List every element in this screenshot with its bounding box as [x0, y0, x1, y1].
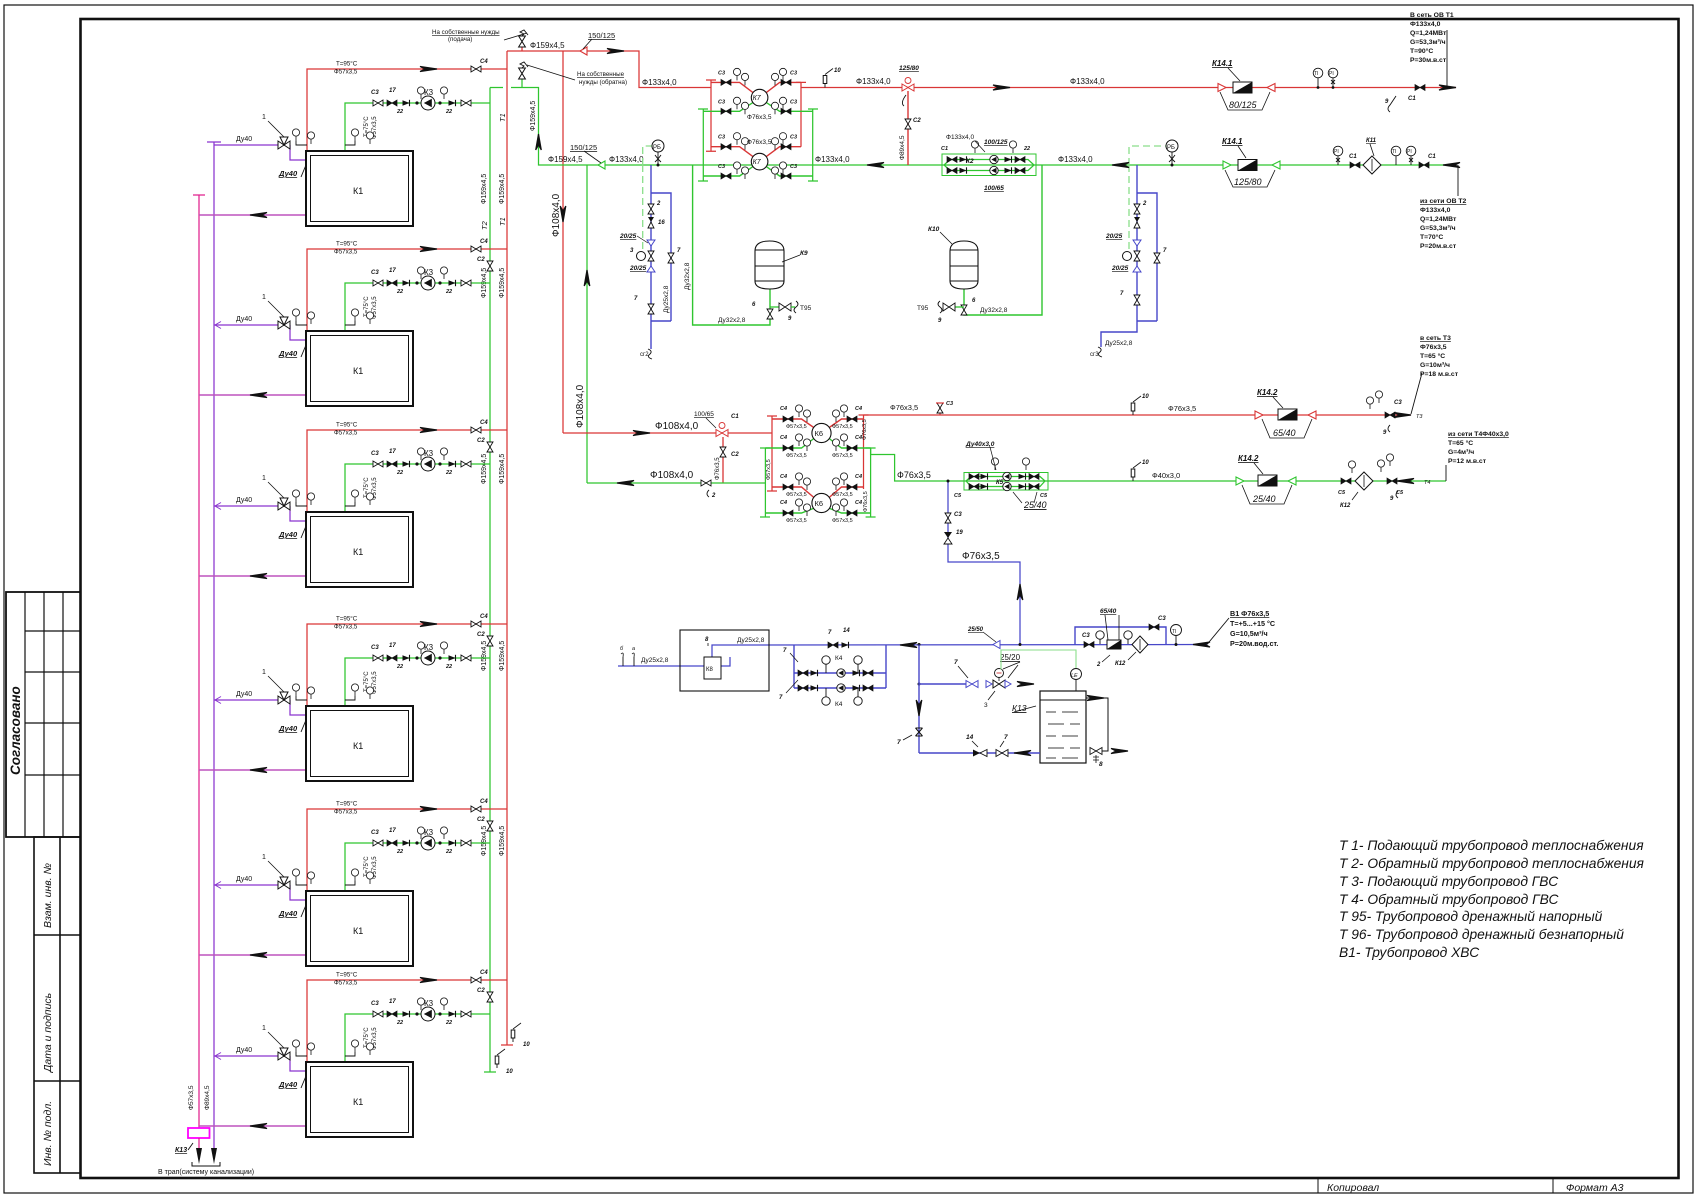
svg-text:С3: С3: [718, 135, 725, 141]
svg-text:В сеть ОВ Т1: В сеть ОВ Т1: [1410, 12, 1454, 19]
svg-text:К14.1: К14.1: [1212, 59, 1233, 68]
svg-text:К8: К8: [706, 667, 713, 673]
svg-text:С2: С2: [477, 632, 485, 638]
svg-text:Ф57х3,5: Ф57х3,5: [786, 424, 807, 430]
svg-text:С3: С3: [718, 99, 725, 105]
svg-text:На собственные нужды: На собственные нужды: [432, 29, 500, 36]
svg-text:Т4: Т4: [1424, 480, 1430, 486]
svg-text:TI: TI: [1172, 629, 1176, 635]
svg-text:Т1: Т1: [498, 217, 507, 226]
svg-text:Т=90°С: Т=90°С: [1410, 47, 1433, 55]
svg-text:Ду25х2,8: Ду25х2,8: [641, 657, 669, 664]
svg-text:Ф57х3,5: Ф57х3,5: [188, 1085, 195, 1110]
svg-text:К14.2: К14.2: [1238, 454, 1259, 463]
svg-text:нужды (обратна): нужды (обратна): [579, 79, 627, 86]
svg-text:Взам. инв. №: Взам. инв. №: [42, 863, 54, 928]
svg-text:Т3: Т3: [1416, 414, 1423, 420]
svg-text:2: 2: [1096, 662, 1101, 668]
svg-text:Q=1,24МВт: Q=1,24МВт: [1420, 216, 1457, 223]
svg-text:150/125: 150/125: [570, 143, 597, 152]
svg-text:Ф108х4,0: Ф108х4,0: [551, 193, 562, 237]
svg-text:в сеть Т3: в сеть Т3: [1420, 335, 1451, 342]
svg-text:На собственные: На собственные: [577, 71, 625, 78]
svg-text:К14.2: К14.2: [1257, 388, 1278, 397]
svg-text:В1- Трубопровод ХВС: В1- Трубопровод ХВС: [1339, 945, 1480, 960]
svg-text:Ф57х3,5: Ф57х3,5: [786, 492, 807, 498]
svg-text:С3: С3: [790, 70, 797, 76]
svg-text:Ф159х4,5: Ф159х4,5: [530, 41, 565, 50]
svg-text:Инв. № подл.: Инв. № подл.: [42, 1101, 54, 1166]
svg-text:10: 10: [1142, 460, 1149, 466]
svg-text:В1 Ф76х3,5: В1 Ф76х3,5: [1230, 609, 1269, 618]
svg-text:65/40: 65/40: [1273, 428, 1296, 438]
svg-text:10: 10: [1142, 394, 1149, 400]
svg-text:2: 2: [656, 201, 661, 207]
svg-text:Т95: Т95: [917, 305, 929, 312]
svg-text:С2: С2: [477, 817, 485, 823]
svg-text:Ф76х3,5: Ф76х3,5: [862, 419, 868, 440]
svg-text:Т1: Т1: [498, 113, 507, 122]
svg-text:Т 96- Трубопровод дренажный бе: Т 96- Трубопровод дренажный безнапорный: [1339, 927, 1624, 942]
svg-text:125/80: 125/80: [1234, 177, 1262, 187]
svg-text:125/80: 125/80: [899, 65, 919, 72]
svg-text:К12: К12: [1115, 661, 1126, 667]
svg-text:С4: С4: [780, 474, 787, 480]
svg-text:Т 3- Подающий трубопровод ГВС: Т 3- Подающий трубопровод ГВС: [1339, 874, 1559, 889]
svg-text:Ф76х3,5: Ф76х3,5: [863, 491, 869, 512]
svg-text:20/25: 20/25: [619, 233, 637, 240]
svg-text:Ду25х2,8: Ду25х2,8: [663, 285, 670, 313]
svg-text:К14.1: К14.1: [1222, 137, 1243, 146]
svg-text:Ф133х4,0: Ф133х4,0: [856, 77, 891, 86]
svg-text:Т=+5...+15 °С: Т=+5...+15 °С: [1230, 619, 1275, 628]
svg-text:РБ: РБ: [653, 145, 661, 151]
svg-text:С3: С3: [790, 164, 797, 170]
svg-text:К13: К13: [1012, 703, 1027, 713]
svg-text:3: 3: [984, 702, 988, 709]
svg-text:TI: TI: [1392, 149, 1396, 155]
svg-text:8: 8: [1099, 761, 1103, 768]
svg-text:Т 1- Подающий трубопровод тепл: Т 1- Подающий трубопровод теплоснабжения: [1339, 838, 1644, 853]
svg-text:Ф159х4,5: Ф159х4,5: [481, 454, 488, 484]
svg-text:Т 95- Трубопровод дренажный на: Т 95- Трубопровод дренажный напорный: [1339, 909, 1603, 924]
svg-text:из сети ОВ Т2: из сети ОВ Т2: [1420, 198, 1467, 205]
svg-text:С1: С1: [1408, 96, 1416, 102]
svg-text:С2: С2: [731, 452, 739, 458]
svg-text:Ду25х2,8: Ду25х2,8: [1105, 340, 1133, 347]
svg-text:Ф57х3,5: Ф57х3,5: [786, 518, 807, 524]
svg-text:10: 10: [523, 1042, 530, 1048]
svg-text:Ф40х3,0: Ф40х3,0: [1152, 471, 1180, 480]
svg-text:Ф133х4,0: Ф133х4,0: [946, 134, 974, 141]
svg-text:С1: С1: [1349, 154, 1357, 160]
svg-text:7: 7: [1004, 734, 1008, 741]
svg-text:Ф159х4,5: Ф159х4,5: [499, 641, 506, 671]
svg-text:Ф76х3,5: Ф76х3,5: [1420, 344, 1447, 351]
svg-text:Ду32х2,8: Ду32х2,8: [980, 307, 1008, 314]
svg-text:G=10м³/ч: G=10м³/ч: [1420, 362, 1450, 369]
svg-text:Ф133х4,0: Ф133х4,0: [609, 155, 644, 164]
svg-text:Ф76х3,5: Ф76х3,5: [747, 139, 772, 146]
svg-text:С2: С2: [913, 118, 921, 124]
svg-text:Ф159х4,5: Ф159х4,5: [548, 155, 583, 164]
svg-text:Ф133х4,0: Ф133х4,0: [1410, 21, 1441, 28]
svg-text:С2: С2: [477, 257, 485, 263]
svg-text:Ф108х4,0: Ф108х4,0: [655, 421, 699, 432]
svg-text:С3: С3: [946, 401, 953, 407]
svg-text:PI: PI: [1334, 149, 1339, 155]
svg-text:Ф76х3,5: Ф76х3,5: [1168, 404, 1196, 413]
svg-text:С4: С4: [855, 406, 862, 412]
svg-text:Ф159х4,5: Ф159х4,5: [499, 826, 506, 856]
svg-text:Ф57х3,5: Ф57х3,5: [766, 459, 772, 480]
svg-text:Р=18 м.в.ст: Р=18 м.в.ст: [1420, 371, 1459, 378]
svg-text:Ф57х3,5: Ф57х3,5: [832, 453, 853, 459]
svg-text:С1: С1: [731, 414, 739, 420]
svg-text:65/40: 65/40: [1100, 608, 1117, 615]
svg-text:Т95: Т95: [800, 305, 812, 312]
svg-text:Р=30м.в.ст: Р=30м.в.ст: [1410, 57, 1447, 64]
svg-text:14: 14: [843, 628, 850, 634]
svg-text:С4: С4: [855, 474, 862, 480]
svg-text:С5: С5: [1338, 490, 1346, 496]
svg-text:С1: С1: [1428, 154, 1436, 160]
svg-text:Ф133х4,0: Ф133х4,0: [1420, 207, 1451, 214]
svg-text:сг2: сг2: [640, 352, 649, 358]
svg-text:К4: К4: [835, 655, 843, 662]
svg-text:Т=70°С: Т=70°С: [1420, 233, 1443, 241]
svg-text:Т2: Т2: [480, 220, 489, 230]
svg-text:Ф57х3,5: Ф57х3,5: [832, 492, 853, 498]
svg-text:С3: С3: [1394, 400, 1402, 406]
svg-text:Ф133х4,0: Ф133х4,0: [1058, 155, 1093, 164]
svg-text:С2: С2: [477, 438, 485, 444]
svg-text:Т 4- Обратный трубопровод ГВС: Т 4- Обратный трубопровод ГВС: [1339, 892, 1560, 907]
svg-text:Ф76х3,5: Ф76х3,5: [897, 470, 931, 480]
svg-text:Ф108х4,0: Ф108х4,0: [650, 470, 694, 481]
svg-text:Ф76х3,5: Ф76х3,5: [747, 114, 772, 121]
svg-text:Ф76х3,5: Ф76х3,5: [715, 457, 721, 480]
svg-text:К7: К7: [753, 95, 762, 102]
svg-text:PI: PI: [1407, 149, 1412, 155]
svg-text:PI: PI: [1329, 71, 1334, 77]
svg-text:С3: С3: [1158, 616, 1166, 622]
svg-text:С3: С3: [954, 512, 962, 518]
svg-text:80/125: 80/125: [1229, 100, 1258, 110]
svg-text:Дата и подпись: Дата и подпись: [42, 993, 54, 1073]
svg-text:25/20: 25/20: [1000, 653, 1021, 662]
svg-text:(подача): (подача): [448, 36, 472, 43]
svg-text:Ф159х4,5: Ф159х4,5: [499, 268, 506, 298]
svg-text:Ф57х3,5: Ф57х3,5: [832, 424, 853, 430]
svg-text:Т 2- Обратный трубопровод тепл: Т 2- Обратный трубопровод теплоснабжения: [1339, 856, 1645, 871]
svg-text:100/125: 100/125: [984, 139, 1008, 146]
svg-text:G=4м³/ч: G=4м³/ч: [1448, 449, 1474, 456]
svg-text:7: 7: [897, 739, 901, 746]
svg-text:Р=12 м.в.ст: Р=12 м.в.ст: [1448, 458, 1487, 465]
svg-text:С3: С3: [718, 164, 725, 170]
svg-text:Ф159х4,5: Ф159х4,5: [530, 101, 537, 131]
svg-text:100/65: 100/65: [984, 185, 1004, 192]
svg-text:С4: С4: [855, 500, 862, 506]
svg-text:С4: С4: [780, 500, 787, 506]
svg-text:Ду25х2,8: Ду25х2,8: [737, 637, 765, 644]
svg-text:В трап(систему канализации): В трап(систему канализации): [158, 1169, 254, 1176]
svg-text:К11: К11: [1366, 138, 1377, 144]
svg-text:G=53,3м³/ч: G=53,3м³/ч: [1420, 225, 1456, 232]
svg-text:К12: К12: [1340, 503, 1351, 509]
svg-text:С5: С5: [1396, 490, 1404, 496]
svg-text:К7: К7: [753, 159, 762, 166]
svg-text:G=10,5м³/ч: G=10,5м³/ч: [1230, 629, 1268, 638]
svg-text:К10: К10: [928, 226, 940, 233]
svg-text:7: 7: [954, 659, 958, 666]
svg-text:Т=65 °С: Т=65 °С: [1448, 439, 1473, 447]
svg-text:Р=20м.в.ст: Р=20м.в.ст: [1420, 243, 1457, 250]
svg-text:К6: К6: [815, 499, 824, 508]
svg-text:Согласовано: Согласовано: [8, 686, 23, 775]
svg-text:16: 16: [658, 220, 665, 226]
svg-text:20/25: 20/25: [1105, 233, 1123, 240]
svg-text:Ду32х2,8: Ду32х2,8: [718, 317, 746, 324]
svg-text:100/65: 100/65: [694, 411, 714, 418]
svg-text:Ф159х4,5: Ф159х4,5: [499, 174, 506, 204]
svg-text:С2: С2: [477, 988, 485, 994]
svg-text:К13: К13: [175, 1147, 187, 1154]
svg-text:19: 19: [956, 530, 963, 536]
svg-text:Ф76х3,5: Ф76х3,5: [890, 403, 918, 412]
svg-text:10: 10: [506, 1069, 513, 1075]
svg-text:сг3: сг3: [1090, 352, 1099, 358]
svg-text:С5: С5: [1040, 493, 1048, 499]
svg-text:С5: С5: [954, 493, 962, 499]
svg-text:К2: К2: [966, 158, 974, 165]
svg-text:Q=1,24МВт: Q=1,24МВт: [1410, 30, 1447, 37]
svg-text:Ф57х3,5: Ф57х3,5: [786, 453, 807, 459]
svg-text:22: 22: [1023, 146, 1030, 152]
svg-text:Ф159х4,5: Ф159х4,5: [499, 454, 506, 484]
svg-text:Ф133х4,0: Ф133х4,0: [1070, 77, 1105, 86]
svg-text:С4: С4: [855, 435, 862, 441]
svg-text:Ф89х4,5: Ф89х4,5: [204, 1085, 211, 1110]
svg-text:из сети Т4Ф40х3,0: из сети Т4Ф40х3,0: [1448, 431, 1509, 438]
svg-text:Ф133х4,0: Ф133х4,0: [642, 78, 677, 87]
svg-text:Ф57х3,5: Ф57х3,5: [832, 518, 853, 524]
svg-text:G=53,3м³/ч: G=53,3м³/ч: [1410, 39, 1446, 46]
svg-text:Р=20м.вод.ст.: Р=20м.вод.ст.: [1230, 639, 1278, 648]
svg-text:25/50: 25/50: [967, 627, 984, 633]
svg-text:Формат А3: Формат А3: [1566, 1182, 1624, 1194]
svg-text:TI: TI: [1314, 71, 1318, 77]
svg-text:РБ: РБ: [1167, 145, 1175, 151]
svg-text:Ду32х2,8: Ду32х2,8: [684, 262, 691, 290]
svg-text:20/25: 20/25: [629, 265, 647, 272]
svg-text:25/40: 25/40: [1252, 494, 1276, 504]
svg-text:Ф159х4,5: Ф159х4,5: [481, 174, 488, 204]
svg-text:С3: С3: [718, 70, 725, 76]
svg-text:С3: С3: [1082, 633, 1090, 639]
svg-text:С4: С4: [780, 435, 787, 441]
svg-text:Копировал: Копировал: [1327, 1182, 1379, 1194]
svg-text:2: 2: [711, 493, 716, 499]
svg-text:а: а: [632, 646, 635, 652]
svg-text:LE: LE: [1071, 673, 1078, 679]
svg-text:К5: К5: [996, 480, 1004, 486]
svg-text:Т=65 °С: Т=65 °С: [1420, 352, 1445, 360]
svg-text:С1: С1: [941, 146, 948, 152]
svg-text:С3: С3: [790, 135, 797, 141]
svg-text:Ф76х3,5: Ф76х3,5: [962, 551, 1000, 562]
svg-text:С3: С3: [790, 99, 797, 105]
svg-text:20/25: 20/25: [1111, 265, 1129, 272]
svg-text:14: 14: [966, 734, 974, 741]
svg-text:К4: К4: [835, 701, 843, 708]
svg-text:К9: К9: [800, 250, 808, 257]
svg-text:Ф133х4,0: Ф133х4,0: [815, 155, 850, 164]
svg-text:2: 2: [1142, 201, 1147, 207]
svg-text:К6: К6: [815, 429, 824, 438]
svg-text:С4: С4: [780, 406, 787, 412]
svg-text:10: 10: [834, 68, 841, 74]
svg-text:150/125: 150/125: [588, 31, 615, 40]
svg-text:Ф108х4,0: Ф108х4,0: [575, 384, 586, 428]
svg-text:Ф89х4,5: Ф89х4,5: [899, 135, 906, 160]
